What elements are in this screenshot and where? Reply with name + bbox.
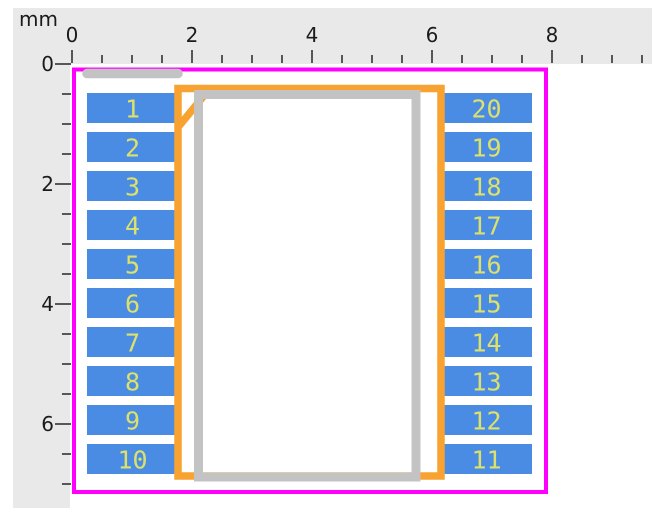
pad-8[interactable] xyxy=(87,366,178,396)
ruler-v-label: 6 xyxy=(13,411,54,437)
pad-1[interactable] xyxy=(87,93,178,123)
ruler-v-minor-tick xyxy=(62,273,71,275)
footprint-canvas[interactable] xyxy=(70,64,652,508)
ruler-h-major-tick xyxy=(311,50,313,63)
ruler-h-major-tick xyxy=(431,50,433,63)
ruler-v-minor-tick xyxy=(62,153,71,155)
ruler-h-minor-tick xyxy=(281,55,283,63)
ruler-h-minor-tick xyxy=(611,55,613,63)
pad-12[interactable] xyxy=(441,405,532,435)
ruler-v-minor-tick xyxy=(62,453,71,455)
pad-15[interactable] xyxy=(441,288,532,318)
ruler-h-minor-tick xyxy=(131,55,133,63)
ruler-v-major-tick xyxy=(55,183,71,185)
ruler-h-minor-tick xyxy=(401,55,403,63)
ruler-h-minor-tick xyxy=(101,55,103,63)
ruler-h-major-tick xyxy=(551,50,553,63)
ruler-h-minor-tick xyxy=(521,55,523,63)
ruler-h-minor-tick xyxy=(491,55,493,63)
ruler-v-major-tick xyxy=(55,303,71,305)
ruler-v-minor-tick xyxy=(62,333,71,335)
pad-4[interactable] xyxy=(87,210,178,240)
ruler-h-major-tick xyxy=(71,50,73,63)
ruler-h-label: 2 xyxy=(154,24,230,46)
pad-17[interactable] xyxy=(441,210,532,240)
ruler-h-minor-tick xyxy=(221,55,223,63)
pad-9[interactable] xyxy=(87,405,178,435)
ruler-h-minor-tick xyxy=(581,55,583,63)
pad-14[interactable] xyxy=(441,327,532,357)
ruler-h-minor-tick xyxy=(251,55,253,63)
ruler-v-label: 2 xyxy=(13,171,54,197)
ruler-h-minor-tick xyxy=(461,55,463,63)
ruler-v-label: 0 xyxy=(13,51,54,77)
pad-19[interactable] xyxy=(441,132,532,162)
ruler-v-minor-tick xyxy=(62,93,71,95)
ruler-h-minor-tick xyxy=(371,55,373,63)
pad-11[interactable] xyxy=(441,444,532,474)
pad-13[interactable] xyxy=(441,366,532,396)
ruler-h-major-tick xyxy=(191,50,193,63)
ruler-v-minor-tick xyxy=(62,483,71,485)
footprint-viewer-window: mm 1234567891020191817161514131211 02468… xyxy=(0,0,652,508)
ruler-v-major-tick xyxy=(55,63,71,65)
ruler-v-minor-tick xyxy=(62,243,71,245)
units-label: mm xyxy=(19,8,58,30)
pad-7[interactable] xyxy=(87,327,178,357)
ruler-h-label: 4 xyxy=(274,24,350,46)
ruler-h-minor-tick xyxy=(341,55,343,63)
ruler-h-minor-tick xyxy=(161,55,163,63)
ruler-v-minor-tick xyxy=(62,363,71,365)
pad-16[interactable] xyxy=(441,249,532,279)
ruler-h-label: 6 xyxy=(394,24,470,46)
pad-5[interactable] xyxy=(87,249,178,279)
pad-6[interactable] xyxy=(87,288,178,318)
pad-18[interactable] xyxy=(441,171,532,201)
ruler-v-minor-tick xyxy=(62,213,71,215)
ruler-h-minor-tick xyxy=(641,55,643,63)
ruler-h-label: 8 xyxy=(514,24,590,46)
pad-3[interactable] xyxy=(87,171,178,201)
pad-20[interactable] xyxy=(441,93,532,123)
ruler-v-label: 4 xyxy=(13,291,54,317)
ruler-v-minor-tick xyxy=(62,393,71,395)
ruler-v-minor-tick xyxy=(62,123,71,125)
pad-10[interactable] xyxy=(87,444,178,474)
ruler-v-major-tick xyxy=(55,423,71,425)
pad-2[interactable] xyxy=(87,132,178,162)
